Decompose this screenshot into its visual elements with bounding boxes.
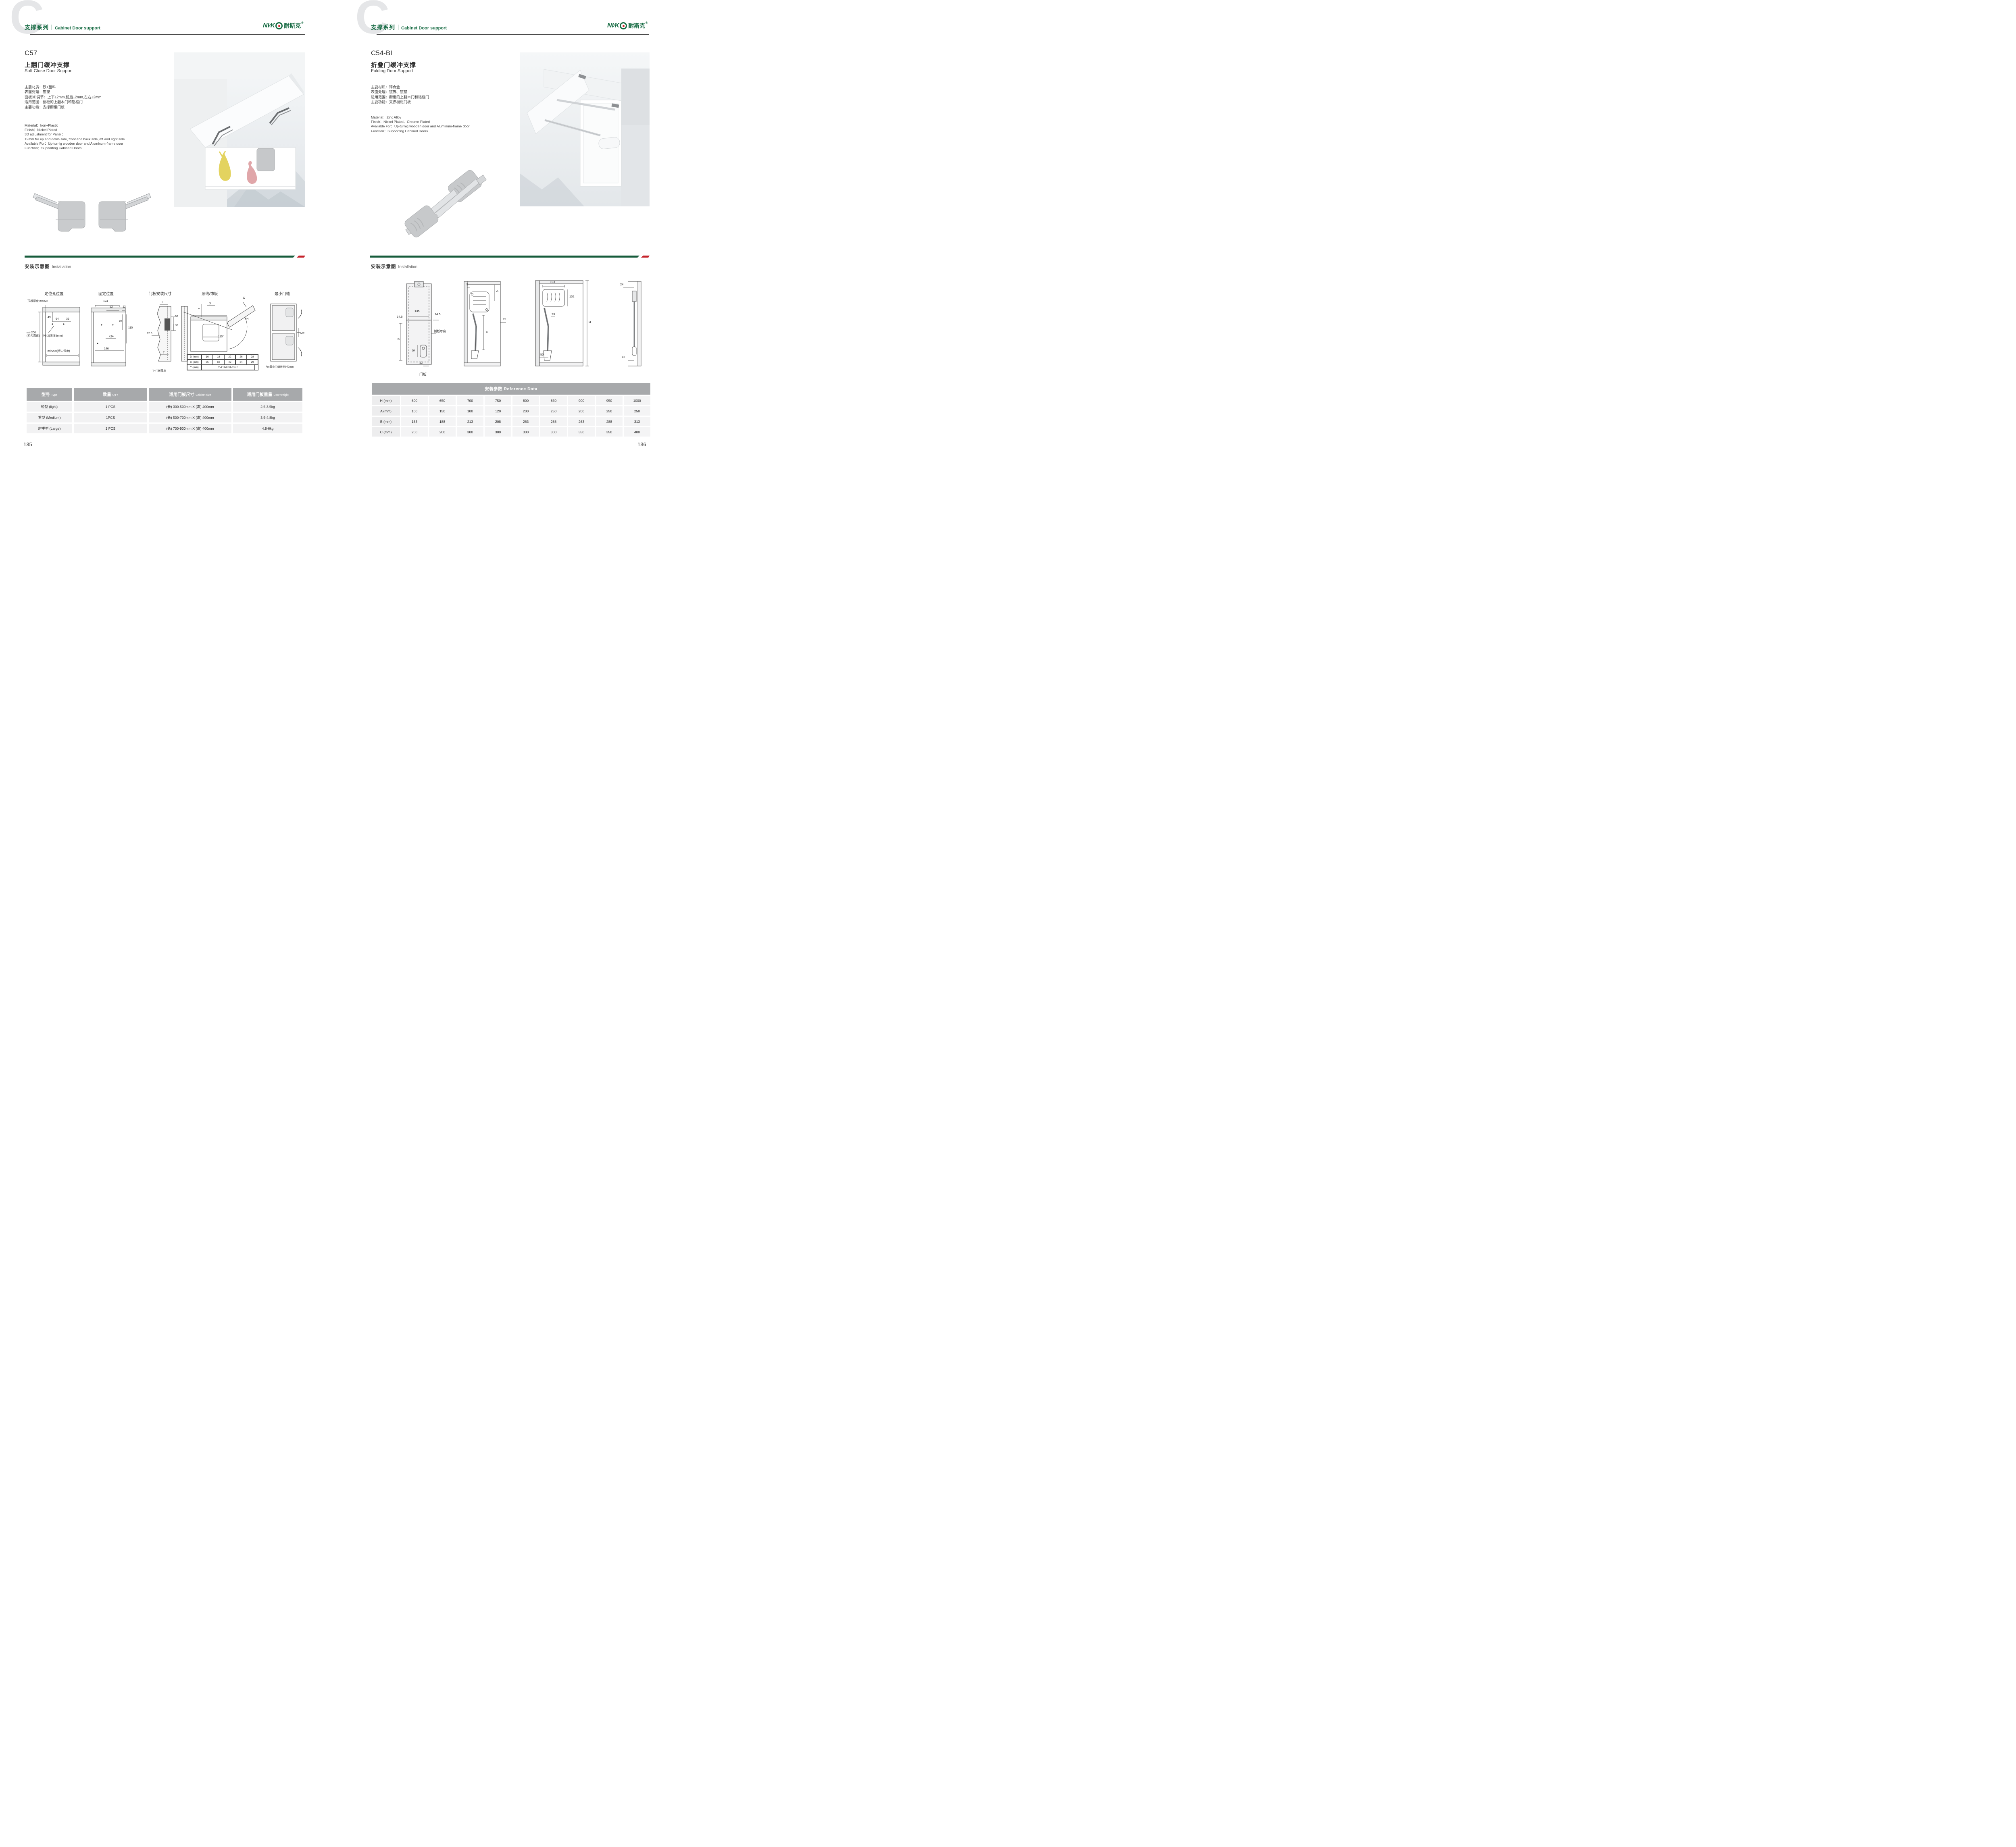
diagram-note: Fm最小门缝开启时2mm <box>266 364 294 368</box>
logo-red-dot-icon <box>623 25 625 27</box>
table-cell: 288 <box>540 417 567 426</box>
watermark-letter: C <box>10 0 44 41</box>
dim-label: 侧板厚度 <box>434 330 446 333</box>
dim-label: 193 <box>550 281 555 284</box>
table-cell: 300 <box>457 427 483 437</box>
series-header: 支撑系列Cabinet Door support <box>25 23 100 31</box>
logo-cn: 耐斯克 <box>284 22 301 30</box>
table-cell: 50 <box>213 360 224 365</box>
logo-red-dot-icon <box>278 25 280 27</box>
table-cell: 288 <box>596 417 623 426</box>
dim-label: 32 <box>175 324 178 327</box>
table-cell: (长) 300-500mm X (高) 400mm <box>149 402 231 412</box>
dim-label: 42 <box>109 335 112 339</box>
table-cell: 300 <box>512 427 539 437</box>
logo-latin: NI∕K <box>263 22 275 29</box>
table-cell: 超重型 (Large) <box>27 424 72 433</box>
dim-label: B <box>398 338 400 341</box>
table-cell: 55 <box>202 360 213 365</box>
page-number: 135 <box>23 441 32 447</box>
table-cell: 350 <box>568 427 595 437</box>
table-cell: 3.5-4.8kg <box>233 413 302 422</box>
installation-heading: 安装示意图Installation <box>25 263 71 270</box>
dim-label: A <box>496 289 498 293</box>
spec-table: 型号Type 数量QTY 适用门板尺寸Cabinet size 适用门板重量Do… <box>27 388 302 433</box>
series-separator <box>52 25 52 30</box>
dim-label: 115 <box>128 327 133 330</box>
dim-label: 36 <box>66 318 69 321</box>
table-cell: 400 <box>624 427 650 437</box>
table-cell: 18 <box>213 354 224 360</box>
spec-line: Function：Supoorting Cabined Doors <box>25 146 125 150</box>
dim-label: min230(柜内深度) <box>48 350 70 353</box>
diagram-crown-panel: Y X D FH 110° D (mm) 16 18 22 26 28 X (m… <box>183 297 258 368</box>
table-row: A (mm) 100 150 100 120 200 250 200 250 2… <box>372 406 650 416</box>
table-cell: 重型 (Medium) <box>27 413 72 422</box>
dim-label: 14.5 <box>435 313 441 316</box>
col-header-size: 适用门板尺寸Cabinet size <box>149 388 231 401</box>
diagram-title: 顶线/饰板 <box>202 291 218 296</box>
page-number: 136 <box>637 441 646 447</box>
table-cell: 700 <box>457 396 483 405</box>
table-cell: 188 <box>429 417 456 426</box>
table-cell: 300 <box>540 427 567 437</box>
table-cell: 16 <box>202 354 213 360</box>
logo-registered-mark: ® <box>301 22 303 25</box>
logo-cn: 耐斯克 <box>628 22 645 30</box>
spec-line: 主要材质：锌合金 <box>371 85 429 89</box>
col-header-type: 型号Type <box>27 388 72 401</box>
table-cell: 28 <box>247 354 258 360</box>
dim-label: 顶板厚度 max22 <box>27 300 48 303</box>
spec-line: 主要功能：支撑橱柜门板 <box>25 105 101 110</box>
dim-label: 54 <box>412 349 415 353</box>
dim-label: 124 <box>103 300 108 303</box>
table-cell: 200 <box>512 406 539 416</box>
product-name-en: Folding Door Support <box>371 69 413 73</box>
dim-label: 49 <box>48 316 51 319</box>
dim-label: 53 <box>175 315 178 318</box>
table-cell: 2.5-3.5kg <box>233 402 302 412</box>
spec-line: Material：Zinc Alloy <box>371 115 470 120</box>
table-row: 重型 (Medium) 1PCS (长) 500-700mm X (高) 400… <box>27 413 302 422</box>
header-rule <box>30 34 305 35</box>
table-cell: 26 <box>235 354 247 360</box>
table-cell: 42 <box>224 360 235 365</box>
series-title-en: Cabinet Door support <box>55 26 100 31</box>
dim-label: D <box>243 297 245 300</box>
diagram-title: 最小门缝 <box>275 291 290 296</box>
spec-line: Function：Supoorting Cabined Doors <box>371 129 470 133</box>
spec-line: 面板3D调节：上下±2mm,前后±2mm,左右±2mm <box>25 95 101 100</box>
table-cell: 208 <box>485 417 511 426</box>
dim-label: MF <box>300 332 304 335</box>
header-cn: 型号 <box>42 391 50 397</box>
brand-logo: NI∕K 耐斯克 ® <box>263 22 303 30</box>
diagram-fixing-position: 124 52 12 81 115 42 146 <box>85 300 134 368</box>
table-cell: 250 <box>624 406 650 416</box>
product-name-en: Soft Close Door Support <box>25 69 73 73</box>
product-name-cn: 折叠门缓冲支撑 <box>371 60 416 69</box>
table-cell: 轻型 (light) <box>27 402 72 412</box>
diagram-cabinet-side: 5 A 19 C <box>455 278 512 373</box>
spec-line: Available For：Up-turnig wooden door and … <box>25 141 125 146</box>
specs-cn: 主要材质：铁+塑料 表面处理：镀镍 面板3D调节：上下±2mm,前后±2mm,左… <box>25 85 101 110</box>
installation-title-cn: 安装示意图 <box>371 264 396 269</box>
dim-label: 110° <box>218 335 224 339</box>
col-header-weight: 适用门板重量Door weight <box>233 388 302 401</box>
dim-label: 24 <box>620 283 623 287</box>
spec-line: 主要功能：支撑橱柜门板 <box>371 100 429 104</box>
table-cell: 200 <box>429 427 456 437</box>
product-name-cn: 上翻门缓冲支撑 <box>25 60 70 69</box>
spec-line: 3D adjustment for Panel： <box>25 132 125 137</box>
dim-label: 12 <box>419 361 423 365</box>
dim-label: (柜内高度) <box>27 335 40 338</box>
diagram-positioning-holes: 顶板厚度 max22 49 64 36 Φ5.2(深度5mm) min200 (… <box>27 300 83 368</box>
dim-label: H <box>589 321 591 324</box>
watermark-letter: C <box>355 0 389 41</box>
row-label: H (mm) <box>372 396 400 405</box>
diagram-note: T=门板厚度 <box>152 368 166 372</box>
dim-label: 12 <box>622 356 625 359</box>
table-cell: 313 <box>624 417 650 426</box>
diagram-title: 定位孔位置 <box>44 291 64 296</box>
dim-label: 146 <box>104 347 109 351</box>
table-row: 轻型 (light) 1 PCS (长) 300-500mm X (高) 400… <box>27 402 302 412</box>
product-code: C57 <box>25 49 37 57</box>
dim-label: 52 <box>110 306 113 309</box>
diagram-title: 门板安装尺寸 <box>148 291 171 296</box>
header-cn: 数量 <box>103 391 111 397</box>
table-cell: 1 PCS <box>74 424 147 433</box>
spec-line: Finish：Nickel Plated <box>25 128 125 132</box>
table-cell: 650 <box>429 396 456 405</box>
installation-title-en: Installation <box>398 265 418 269</box>
logo-latin: NI∕K <box>607 22 619 29</box>
series-title-cn: 支撑系列 <box>371 24 395 31</box>
specs-en: Material：Iron+Plastic Finish：Nickel Plat… <box>25 123 125 150</box>
dim-label: 135 <box>414 310 420 313</box>
logo-registered-mark: ® <box>646 22 648 25</box>
table-cell: 100 <box>401 406 428 416</box>
diagram-title: 固定位置 <box>98 291 114 296</box>
dim-label: T <box>161 301 163 304</box>
col-header-qty: 数量QTY <box>74 388 147 401</box>
table-cell: 29 <box>247 360 258 365</box>
spec-line: Available For：Up-turnig wooden door and … <box>371 124 470 129</box>
dim-label: 12.5 <box>147 332 152 335</box>
diagram-panel-mounting: T 53 32 12.5 T T=门板厚度 <box>141 300 187 373</box>
catalog-spread: C 支撑系列Cabinet Door support NI∕K 耐斯克 ® C5… <box>0 0 676 462</box>
dim-label: Φ5.2(深度5mm) <box>43 335 63 338</box>
table-cell: 950 <box>596 396 623 405</box>
header-cn: 适用门板尺寸 <box>169 391 194 397</box>
spec-line: 表面处理：镀镍、镀铬 <box>371 89 429 94</box>
spec-line: 适用范围：橱柜的上翻木门和铝框门 <box>25 100 101 104</box>
table-row: 超重型 (Large) 1 PCS (长) 700-900mm X (高) 40… <box>27 424 302 433</box>
dim-label: 19 <box>503 318 506 321</box>
header-cn: 适用门板重量 <box>247 391 272 397</box>
dim-label: 102 <box>569 295 575 299</box>
row-label: C (mm) <box>372 427 400 437</box>
table-cell: D (mm) <box>187 354 202 360</box>
table-cell: 350 <box>596 427 623 437</box>
spec-line: 适用范围：橱柜的上翻木门和铝框门 <box>371 95 429 100</box>
table-cell: 213 <box>457 417 483 426</box>
dim-label: X <box>209 302 211 306</box>
table-cell: 1PCS <box>74 413 147 422</box>
section-separator-green <box>25 256 295 258</box>
specs-en: Material：Zinc Alloy Finish：Nickel Plated… <box>371 115 470 133</box>
table-cell: 200 <box>401 427 428 437</box>
table-cell: 1 PCS <box>74 402 147 412</box>
row-label: B (mm) <box>372 417 400 426</box>
spec-line: 主要材质：铁+塑料 <box>25 85 101 89</box>
table-cell: 200 <box>568 406 595 416</box>
table-cell: 850 <box>540 396 567 405</box>
logo-o-icon <box>275 22 283 29</box>
header-en: Type <box>51 394 57 397</box>
installation-title-cn: 安装示意图 <box>25 264 50 269</box>
table-cell: 750 <box>485 396 511 405</box>
table-cell: 4.8-6kg <box>233 424 302 433</box>
dim-label: 50 <box>540 353 544 357</box>
hardware-image <box>397 164 487 243</box>
dim-label: Y <box>198 308 200 311</box>
section-separator-green <box>370 256 639 258</box>
table-cell: 263 <box>568 417 595 426</box>
dim-label: 64 <box>56 318 59 321</box>
spec-line: 表面处理：镀镍 <box>25 89 101 94</box>
table-cell: 150 <box>429 406 456 416</box>
series-title-en: Cabinet Door support <box>401 26 447 31</box>
table-cell: 300 <box>485 427 511 437</box>
table-row: C (mm) 200 200 300 300 300 300 350 350 4… <box>372 427 650 437</box>
dim-label: min200 <box>27 331 36 335</box>
section-separator-red <box>297 256 305 258</box>
diagram-door-edge: 24 12 <box>616 278 646 373</box>
table-cell: 120 <box>485 406 511 416</box>
dim-label: 23 <box>552 313 555 316</box>
product-photo <box>174 52 305 209</box>
table-cell: 34 <box>235 360 247 365</box>
section-separator-red <box>641 256 650 258</box>
dim-label: C <box>486 331 488 334</box>
header-en: Cabinet size <box>196 394 211 397</box>
product-code: C54-BI <box>371 49 392 57</box>
table-cell: 800 <box>512 396 539 405</box>
table-cell: Y=FHx0.31-15+D <box>202 365 255 370</box>
specs-cn: 主要材质：锌合金 表面处理：镀镍、镀铬 适用范围：橱柜的上翻木门和铝框门 主要功… <box>371 85 429 105</box>
diagram-door-panel: 135 14.5 14.5 B 侧板厚度 54 12 门板 <box>397 278 449 379</box>
header-rule <box>377 34 649 35</box>
dim-label: 14.5 <box>397 315 403 319</box>
table-cell: (长) 500-700mm X (高) 400mm <box>149 413 231 422</box>
table-cell: 250 <box>540 406 567 416</box>
hardware-image <box>31 185 152 235</box>
series-separator <box>398 25 398 30</box>
table-row: B (mm) 163 188 213 208 263 288 263 288 3… <box>372 417 650 426</box>
spec-line: ±2mm for up and down side, front and bac… <box>25 137 125 141</box>
table-cell: 250 <box>596 406 623 416</box>
table-cell: 22 <box>224 354 235 360</box>
spec-line: Finish：Nickel Plated、Chrome Plated <box>371 120 470 124</box>
ref-table-title: 安装参数 Reference Data <box>372 383 650 395</box>
dim-label: 5 <box>467 283 468 287</box>
series-header: 支撑系列Cabinet Door support <box>371 23 447 31</box>
dim-label: 12 <box>123 306 126 309</box>
table-cell: 900 <box>568 396 595 405</box>
crown-panel-table: D (mm) 16 18 22 26 28 X (mm) 55 50 42 34… <box>187 354 258 370</box>
table-cell: X (mm) <box>187 360 202 365</box>
brand-logo: NI∕K 耐斯克 ® <box>607 22 648 30</box>
series-title-cn: 支撑系列 <box>25 24 49 31</box>
table-cell: 263 <box>512 417 539 426</box>
page-left: C 支撑系列Cabinet Door support NI∕K 耐斯克 ® C5… <box>0 0 338 462</box>
dim-label: T <box>163 352 165 355</box>
spec-table-header: 型号Type 数量QTY 适用门板尺寸Cabinet size 适用门板重量Do… <box>27 388 302 401</box>
logo-o-icon <box>620 22 627 29</box>
installation-heading: 安装示意图Installation <box>371 263 417 270</box>
table-cell: 600 <box>401 396 428 405</box>
page-right: C 支撑系列Cabinet Door support NI∕K 耐斯克 ® C5… <box>338 0 676 462</box>
dim-label: 81 <box>119 320 123 323</box>
table-cell: Y (mm) <box>187 365 202 370</box>
diagram-min-gap: MF Fm最小门缝开启时2mm <box>264 300 304 369</box>
diagram-caption: 门板 <box>397 372 449 377</box>
installation-title-en: Installation <box>52 265 71 269</box>
dim-label: FH <box>245 318 248 321</box>
header-en: QTY <box>112 394 118 397</box>
spec-line: Material：Iron+Plastic <box>25 123 125 128</box>
product-photo <box>520 52 650 208</box>
header-en: Door weight <box>273 394 288 397</box>
table-cell: 1000 <box>624 396 650 405</box>
table-cell: 100 <box>457 406 483 416</box>
diagram-cabinet-front: 193 102 23 H 50 <box>531 278 593 373</box>
table-row: H (mm) 600 650 700 750 800 850 900 950 1… <box>372 396 650 405</box>
table-cell: 163 <box>401 417 428 426</box>
row-label: A (mm) <box>372 406 400 416</box>
table-cell: (长) 700-900mm X (高) 400mm <box>149 424 231 433</box>
